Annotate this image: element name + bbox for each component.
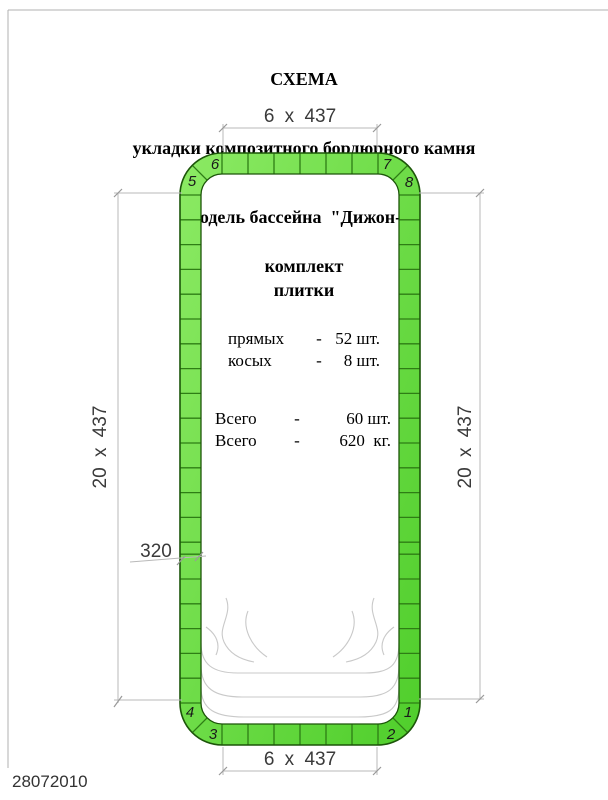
corner-number-4: 4	[186, 704, 194, 721]
kit-row-value: 620 кг.	[319, 431, 391, 451]
dim-label-left: 20 x 437	[90, 406, 111, 489]
kit-row-angled: косых - 8 шт.	[228, 351, 380, 371]
kit-row-label: косых	[228, 351, 310, 371]
kit-row-total-count: Всего - 60 шт.	[215, 409, 391, 429]
kit-row-total-weight: Всего - 620 кг.	[215, 431, 391, 451]
step-contour-1	[201, 643, 399, 673]
kit-heading-line-2: плитки	[0, 280, 608, 301]
pool-border-diagram: 5 6 7 8 4 3 1 2 6 x 437 6 x 43	[0, 0, 608, 800]
corner-number-6: 6	[211, 156, 220, 173]
kit-row-value: 60 шт.	[319, 409, 391, 429]
kit-row-value: 8 шт.	[328, 351, 380, 371]
dim-label-top: 6 x 437	[264, 106, 336, 127]
left-rail-curve-2	[206, 627, 218, 655]
corner-number-1: 1	[404, 704, 412, 721]
dim-label-bottom: 6 x 437	[264, 749, 336, 770]
right-rail-curve-2	[382, 627, 394, 655]
step-contour-3	[201, 687, 399, 717]
pool-steps-curves	[201, 598, 399, 717]
dim-label-right: 20 x 437	[455, 406, 476, 489]
dim-label-narrow-tile: 320	[140, 541, 172, 562]
corner-number-2: 2	[386, 726, 396, 743]
right-rail-curve-1	[346, 598, 378, 662]
kit-row-dash: -	[275, 431, 319, 451]
kit-row-label: Всего	[215, 409, 275, 429]
left-rail-curve-3	[246, 611, 267, 657]
kit-row-value: 52 шт.	[328, 329, 380, 349]
kit-row-dash: -	[310, 351, 328, 371]
date-stamp: 28072010	[12, 772, 88, 792]
step-contour-2	[201, 665, 399, 697]
kit-row-label: прямых	[228, 329, 310, 349]
corner-number-7: 7	[383, 156, 392, 173]
right-rail-curve-3	[333, 611, 354, 657]
corner-number-8: 8	[405, 174, 414, 191]
kit-heading-line-1: комплект	[0, 256, 608, 277]
kit-row-straight: прямых - 52 шт.	[228, 329, 380, 349]
corner-number-3: 3	[209, 726, 218, 743]
kit-row-dash: -	[275, 409, 319, 429]
kit-row-label: Всего	[215, 431, 275, 451]
corner-number-5: 5	[188, 173, 197, 190]
kit-row-dash: -	[310, 329, 328, 349]
left-rail-curve-1	[222, 598, 254, 662]
